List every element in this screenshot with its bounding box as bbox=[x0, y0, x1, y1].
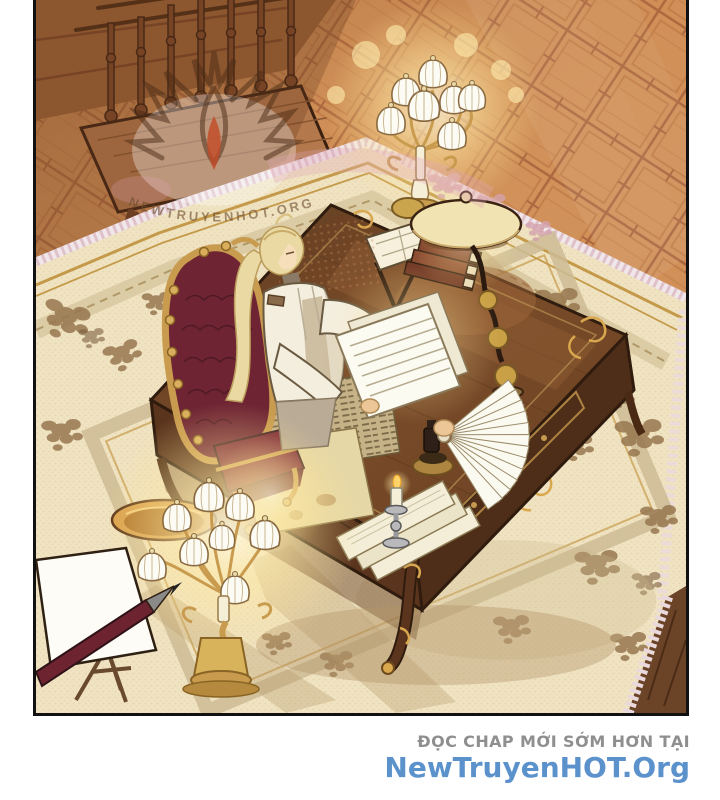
comic-panel: NEWTRUYENHOT.ORG bbox=[33, 0, 689, 716]
footer-site-link[interactable]: NewTruyenHOT.Org bbox=[0, 751, 690, 784]
scene-illustration: NEWTRUYENHOT.ORG bbox=[36, 0, 686, 713]
webtoon-page: NEWTRUYENHOT.ORG ĐỌC CHAP MỚI SỚM HƠN TẠ… bbox=[0, 0, 720, 800]
footer-tagline: ĐỌC CHAP MỚI SỚM HƠN TẠI bbox=[0, 732, 690, 751]
footer-credit: ĐỌC CHAP MỚI SỚM HƠN TẠI NewTruyenHOT.Or… bbox=[0, 716, 720, 800]
hand bbox=[434, 420, 454, 436]
hand bbox=[361, 399, 379, 413]
